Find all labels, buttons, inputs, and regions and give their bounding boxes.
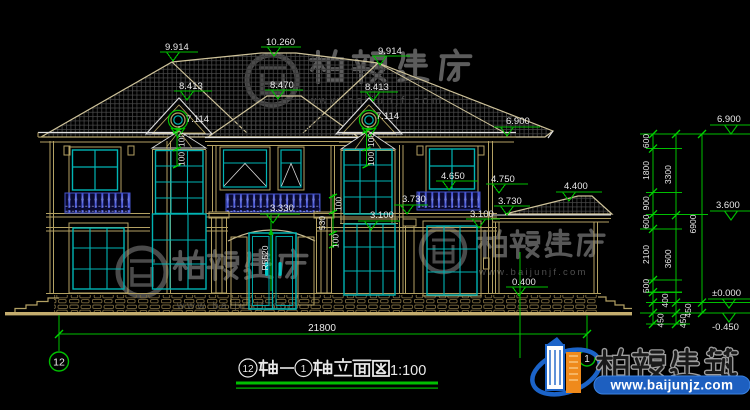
svg-text:6900: 6900 [688,214,698,233]
svg-text:450: 450 [656,313,666,327]
svg-text:1:100: 1:100 [390,363,426,379]
svg-text:8.413: 8.413 [365,82,389,93]
svg-text:6.900: 6.900 [506,116,530,127]
svg-text:0.400: 0.400 [512,277,536,288]
svg-text:3.600: 3.600 [716,200,740,211]
svg-text:3300: 3300 [663,165,673,184]
svg-text:9.914: 9.914 [165,42,189,53]
svg-text:3.100: 3.100 [470,209,494,220]
svg-text:12: 12 [53,357,65,369]
svg-text:9.914: 9.914 [378,46,402,57]
svg-text:8.413: 8.413 [179,81,203,92]
svg-text:21800: 21800 [308,323,336,334]
svg-text:R5520: R5520 [260,245,270,270]
svg-text:100: 100 [331,234,341,248]
svg-text:2100: 2100 [641,245,651,264]
svg-text:3.730: 3.730 [498,196,522,207]
svg-text:4.750: 4.750 [491,174,515,185]
svg-text:4.400: 4.400 [564,181,588,192]
svg-text:450: 450 [683,303,693,317]
svg-text:3.730: 3.730 [402,194,426,205]
svg-text:100: 100 [366,133,376,147]
svg-text:400: 400 [660,293,670,307]
svg-text:12: 12 [242,364,254,375]
svg-text:8.470: 8.470 [270,80,294,91]
svg-text:3.100: 3.100 [370,210,394,221]
svg-text:-0.450: -0.450 [712,322,739,333]
svg-text:100: 100 [177,152,187,166]
svg-text:1: 1 [584,354,590,365]
svg-text:1800: 1800 [641,161,651,180]
svg-text:7.114: 7.114 [186,114,209,125]
svg-text:530: 530 [317,216,327,230]
svg-text:1: 1 [301,364,307,375]
svg-text:100: 100 [366,152,376,166]
svg-text:6.900: 6.900 [717,114,741,125]
svg-text:4.650: 4.650 [441,171,465,182]
svg-text:600: 600 [641,134,651,148]
svg-text:7.114: 7.114 [376,111,399,122]
svg-text:600: 600 [641,214,651,228]
svg-text:100: 100 [177,133,187,147]
svg-text:±0.000: ±0.000 [712,288,741,299]
svg-text:100: 100 [334,197,344,211]
svg-text:3600: 3600 [663,249,673,268]
svg-text:10.260: 10.260 [266,37,295,48]
svg-text:3.330: 3.330 [270,203,294,214]
svg-text:900: 900 [641,196,651,210]
svg-text:500: 500 [641,279,651,293]
svg-text:www.baijunjz.com: www.baijunjz.com [610,378,734,393]
